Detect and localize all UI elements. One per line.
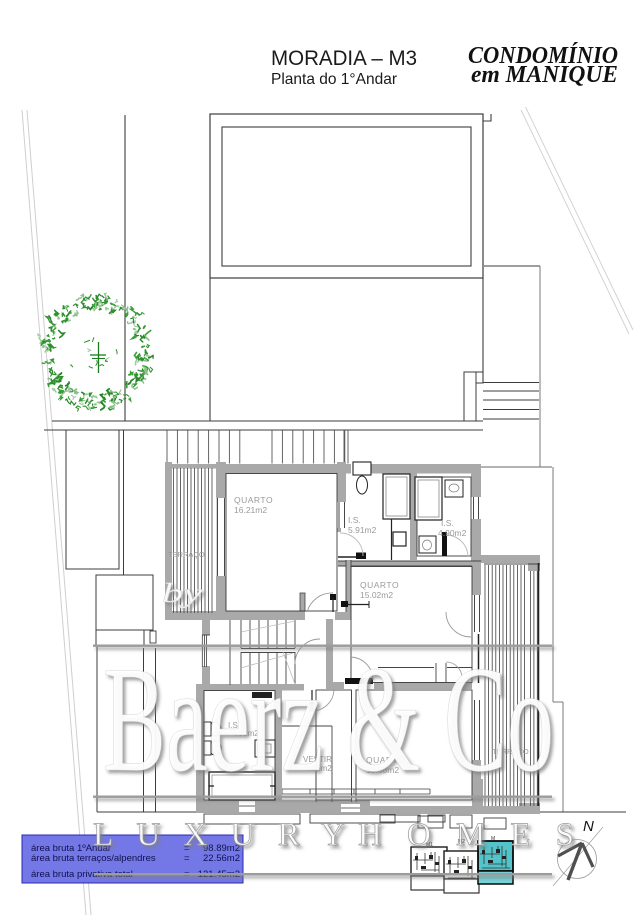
svg-text:M: M (491, 836, 495, 842)
svg-text:I.S.: I.S. (441, 518, 454, 528)
svg-text:QUARTO: QUARTO (234, 495, 273, 505)
svg-text:=: = (184, 853, 190, 864)
svg-text:Planta do 1°Andar: Planta do 1°Andar (271, 71, 398, 88)
svg-text:15.02m2: 15.02m2 (360, 590, 393, 600)
svg-text:Baerz & Co: Baerz & Co (103, 635, 554, 803)
svg-text:área bruta terraços/alpendres: área bruta terraços/alpendres (31, 853, 156, 864)
svg-text:4.90m2: 4.90m2 (438, 528, 467, 538)
svg-text:16.21m2: 16.21m2 (234, 505, 267, 515)
svg-text:TERRAÇO: TERRAÇO (168, 550, 205, 559)
svg-text:5.91m2: 5.91m2 (348, 525, 377, 535)
svg-text:em MANIQUE: em MANIQUE (471, 62, 618, 88)
svg-text:22.56m2: 22.56m2 (203, 853, 240, 864)
svg-text:I.S.: I.S. (348, 515, 361, 525)
svg-text:by: by (162, 578, 202, 608)
svg-text:QUARTO: QUARTO (360, 580, 399, 590)
svg-text:MORADIA – M3: MORADIA – M3 (271, 47, 417, 70)
svg-text:N: N (583, 818, 594, 835)
